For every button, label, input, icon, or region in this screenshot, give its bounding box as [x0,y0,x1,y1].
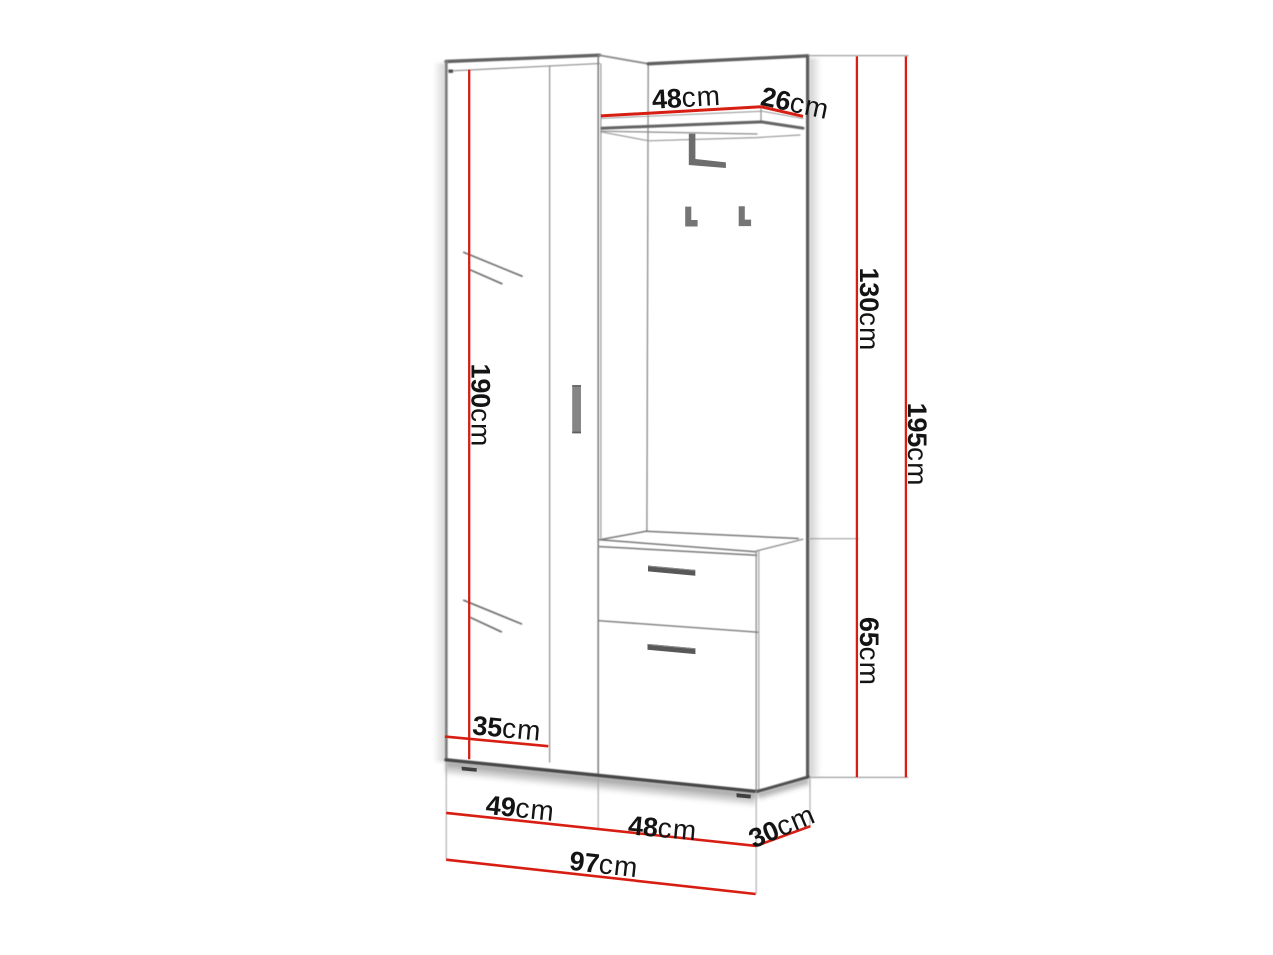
svg-text:130cm: 130cm [854,268,885,352]
svg-text:190cm: 190cm [466,364,497,448]
svg-text:49cm: 49cm [484,789,556,827]
svg-text:30cm: 30cm [744,798,820,854]
svg-text:48cm: 48cm [627,809,699,846]
svg-text:35cm: 35cm [471,710,543,747]
svg-text:65cm: 65cm [854,617,885,686]
svg-text:48cm: 48cm [651,80,722,115]
svg-text:26cm: 26cm [758,80,832,125]
svg-text:97cm: 97cm [568,845,640,883]
svg-text:195cm: 195cm [902,403,933,487]
